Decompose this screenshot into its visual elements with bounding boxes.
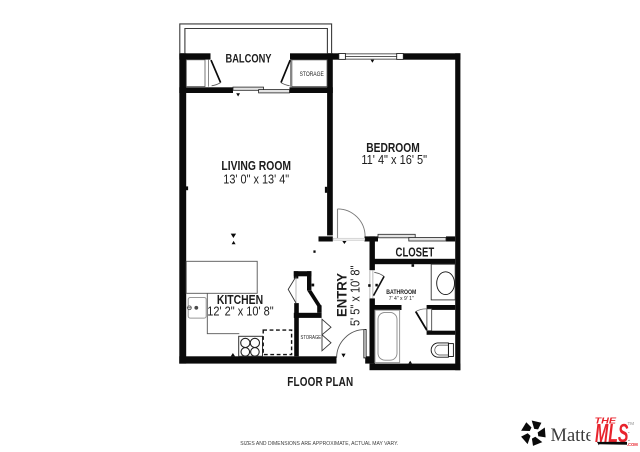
svg-text:5' 5" x 10' 8": 5' 5" x 10' 8" <box>348 266 362 326</box>
svg-text:.COM: .COM <box>627 442 638 447</box>
svg-text:SIZES AND DIMENSIONS ARE APPRO: SIZES AND DIMENSIONS ARE APPROXIMATE, AC… <box>240 441 398 447</box>
svg-text:TM: TM <box>628 421 635 426</box>
svg-text:ENTRY: ENTRY <box>334 272 350 317</box>
svg-text:STORAGE: STORAGE <box>300 71 324 78</box>
svg-text:7' 4" x 9' 1": 7' 4" x 9' 1" <box>389 296 414 302</box>
svg-text:FLOOR PLAN: FLOOR PLAN <box>287 374 353 389</box>
svg-text:11' 4" x 16' 5": 11' 4" x 16' 5" <box>361 153 427 167</box>
svg-text:STORAGE: STORAGE <box>301 335 322 341</box>
svg-text:13' 0" x 13' 4": 13' 0" x 13' 4" <box>223 172 289 186</box>
svg-text:LIVING ROOM: LIVING ROOM <box>221 158 291 173</box>
svg-text:12' 2" x 10' 8": 12' 2" x 10' 8" <box>207 305 273 319</box>
svg-text:CLOSET: CLOSET <box>396 245 435 259</box>
svg-text:BALCONY: BALCONY <box>226 54 272 66</box>
